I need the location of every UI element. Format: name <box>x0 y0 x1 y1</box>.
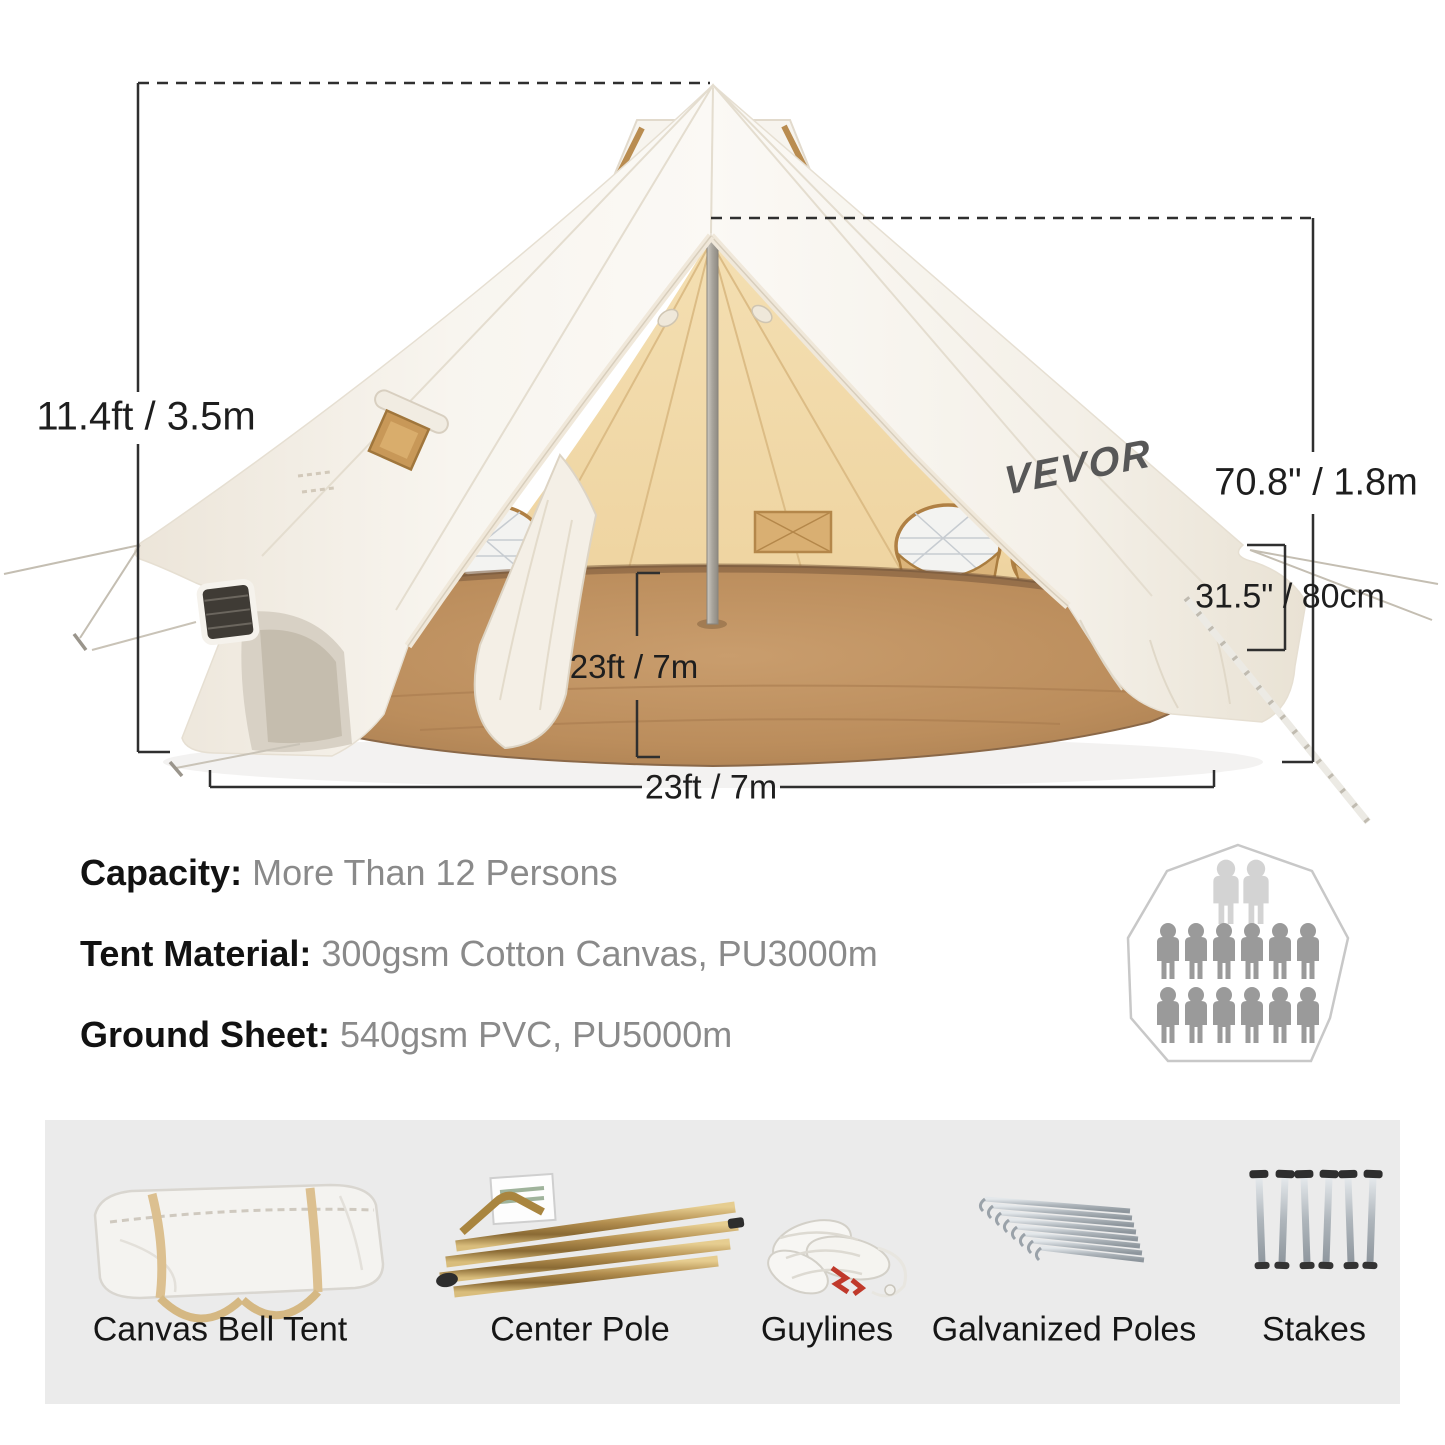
person-icon <box>1297 923 1319 979</box>
spec-capacity: Capacity: More Than 12 Persons <box>80 852 618 894</box>
spec-ground-sheet-label: Ground Sheet: <box>80 1014 330 1055</box>
tent-illustration <box>0 0 1445 1445</box>
item-label-center-pole: Center Pole <box>490 1311 670 1350</box>
item-label-stakes: Stakes <box>1262 1311 1366 1350</box>
person-icon <box>1243 860 1268 924</box>
person-icon <box>1269 923 1291 979</box>
spec-tent-material-value: 300gsm Cotton Canvas, PU3000m <box>321 933 877 974</box>
inner-vent-window <box>755 512 831 552</box>
standard-persons <box>1157 923 1319 1043</box>
person-icon <box>1185 923 1207 979</box>
ground-width-label: 23ft / 7m <box>645 769 777 808</box>
person-icon <box>1241 987 1263 1043</box>
person-icon <box>1185 987 1207 1043</box>
inner-peak-height-label: 70.8" / 1.8m <box>1214 462 1418 505</box>
item-label-canvas-bell-tent: Canvas Bell Tent <box>93 1311 348 1350</box>
included-items-strip <box>45 1120 1400 1404</box>
highlight-persons <box>1213 860 1268 924</box>
person-icon <box>1297 987 1319 1043</box>
person-icon <box>1213 923 1235 979</box>
item-label-guylines: Guylines <box>761 1311 893 1350</box>
total-height-label: 11.4ft / 3.5m <box>36 395 255 440</box>
spec-capacity-value: More Than 12 Persons <box>252 852 618 893</box>
person-icon <box>1157 923 1179 979</box>
floor-diameter-label: 23ft / 7m <box>570 648 698 686</box>
spec-ground-sheet: Ground Sheet: 540gsm PVC, PU5000m <box>80 1014 732 1056</box>
person-icon <box>1241 923 1263 979</box>
spec-ground-sheet-value: 540gsm PVC, PU5000m <box>340 1014 732 1055</box>
person-icon <box>1213 987 1235 1043</box>
spec-capacity-label: Capacity: <box>80 852 242 893</box>
person-icon <box>1213 860 1238 924</box>
tent-photo <box>4 85 1438 822</box>
product-infographic: { "brand": { "logo_text": "VEVOR" }, "te… <box>0 0 1445 1445</box>
spec-tent-material: Tent Material: 300gsm Cotton Canvas, PU3… <box>80 933 878 975</box>
side-mesh-window <box>199 581 257 643</box>
wall-height-label: 31.5" / 80cm <box>1195 578 1385 617</box>
person-icon <box>1157 987 1179 1043</box>
capacity-diagram <box>1128 845 1348 1061</box>
item-label-galvanized-poles: Galvanized Poles <box>932 1311 1197 1350</box>
person-icon <box>1269 987 1291 1043</box>
spec-tent-material-label: Tent Material: <box>80 933 311 974</box>
